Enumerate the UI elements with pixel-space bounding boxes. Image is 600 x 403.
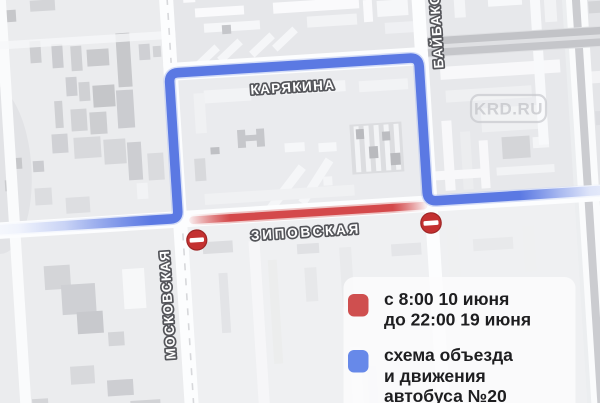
svg-text:с 8:00 10 июня: с 8:00 10 июня bbox=[384, 289, 509, 309]
svg-text:до 22:00 19 июня: до 22:00 19 июня bbox=[384, 310, 531, 330]
svg-text:автобуса №20: автобуса №20 bbox=[384, 386, 507, 403]
svg-text:и движения: и движения bbox=[384, 366, 486, 386]
svg-text:KRD.RU: KRD.RU bbox=[474, 100, 543, 119]
svg-text:схема объезда: схема объезда bbox=[384, 345, 513, 365]
